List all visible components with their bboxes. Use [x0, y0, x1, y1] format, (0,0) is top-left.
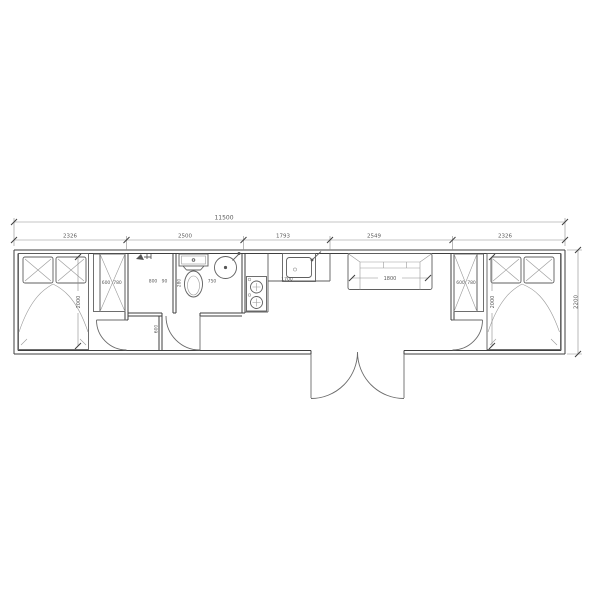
bed-left-length-label: 2000: [76, 296, 82, 309]
wardrobe-left-panel: [94, 254, 101, 312]
segment-4-label: 2549: [367, 234, 381, 240]
kitchen: 1700: [245, 252, 330, 313]
wardrobe-right-depth-label: 600: [456, 280, 465, 286]
overall-length-label: 11500: [214, 215, 233, 222]
bedroom-right: 2000 600 780: [454, 254, 561, 350]
stove-burner-grates: [253, 283, 261, 307]
sofa: [348, 254, 432, 290]
toilet-flush-knob: [192, 259, 195, 262]
toilet-tank-inner: [182, 256, 206, 264]
bed-right-blanket: [488, 284, 560, 345]
dimension-overall-width: 2200: [567, 247, 582, 357]
bedroom-left: 2000 600 780: [19, 254, 126, 350]
segment-3-label: 1793: [276, 234, 290, 240]
stove-knob-1: [248, 278, 251, 281]
exterior-and-partition-walls: [14, 250, 565, 354]
wardrobe-right-panel: [477, 254, 484, 312]
walls: [14, 250, 565, 354]
washbasin-drain: [224, 266, 227, 269]
canvas-page: 2000 600 780 2000 600 780: [0, 0, 600, 600]
counter-length-label: 1700: [281, 277, 293, 283]
floor-plan-drawing: 2000 600 780 2000 600 780: [0, 0, 600, 600]
shower-icon-arm: [144, 254, 151, 259]
toilet-neck: [183, 266, 204, 270]
sofa-length-label: 1800: [384, 276, 397, 282]
shower-icon: [136, 254, 144, 260]
shower-width-label: 800: [149, 279, 158, 285]
wardrobe-right-width-label: 780: [467, 280, 476, 286]
bathroom: 800 90 280 750 600: [136, 252, 241, 333]
bed-right-length-label: 2000: [490, 296, 496, 309]
washbasin-tap-dot: [238, 252, 241, 255]
bed-right-pillow-creases: [493, 259, 552, 281]
bedroom-left-door: [97, 320, 127, 350]
passage-width-label: 600: [154, 325, 160, 334]
overall-width-label: 2200: [574, 295, 580, 309]
kitchen-sink-drain: [293, 268, 296, 271]
bed-left-pillow-creases: [25, 259, 84, 281]
kitchen-sink-tap: [312, 252, 321, 261]
entry-double-door: [311, 352, 404, 399]
living-area: 1800: [348, 254, 432, 290]
wardrobe-left-depth-label: 600: [102, 280, 111, 286]
toilet-bowl: [185, 271, 203, 297]
sofa-details: [348, 254, 432, 290]
kitchen-sink-tap-dot: [311, 259, 314, 262]
dimension-segments: 2326 2500 1793 2549 2326: [11, 234, 568, 251]
toilet-width-label: 750: [208, 279, 217, 285]
segment-2-label: 2500: [178, 234, 192, 240]
wardrobe-left-width-label: 780: [113, 280, 122, 286]
segment-1-label: 2326: [63, 234, 77, 240]
bathroom-door: [166, 316, 200, 350]
bed-left-blanket: [19, 284, 88, 345]
washbasin-tap: [233, 254, 240, 261]
kitchen-counter: [245, 254, 330, 313]
segment-5-label: 2326: [498, 234, 512, 240]
kitchen-sink-basin: [287, 258, 312, 278]
bedroom-right-door: [453, 320, 483, 350]
stove-knob-2: [248, 294, 251, 297]
shower-gap-label: 90: [162, 279, 168, 285]
toilet-side-label: 280: [177, 279, 183, 288]
toilet-bowl-inner: [188, 276, 200, 295]
dimension-overall-length: 11500: [11, 215, 568, 247]
